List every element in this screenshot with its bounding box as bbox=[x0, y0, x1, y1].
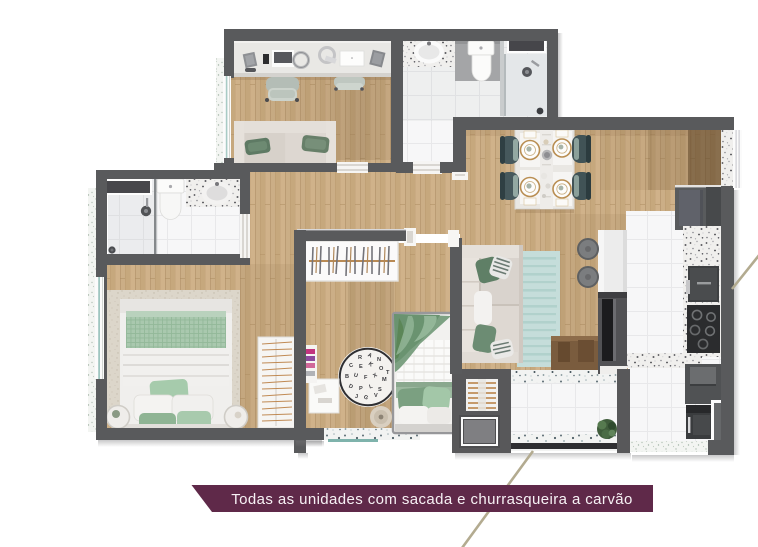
svg-text:B: B bbox=[345, 374, 349, 380]
svg-text:E: E bbox=[359, 364, 363, 370]
svg-text:F: F bbox=[364, 375, 368, 381]
svg-text:S: S bbox=[378, 387, 382, 393]
svg-text:M: M bbox=[382, 377, 387, 383]
svg-text:P: P bbox=[359, 386, 363, 392]
svg-text:V: V bbox=[374, 393, 378, 399]
svg-text:J: J bbox=[355, 394, 358, 400]
svg-text:O: O bbox=[379, 366, 384, 372]
svg-text:N: N bbox=[377, 357, 381, 363]
svg-text:R: R bbox=[358, 355, 362, 361]
svg-text:T: T bbox=[386, 370, 390, 376]
svg-text:Todas as unidades com sacada e: Todas as unidades com sacada e churrasqu… bbox=[231, 491, 632, 508]
